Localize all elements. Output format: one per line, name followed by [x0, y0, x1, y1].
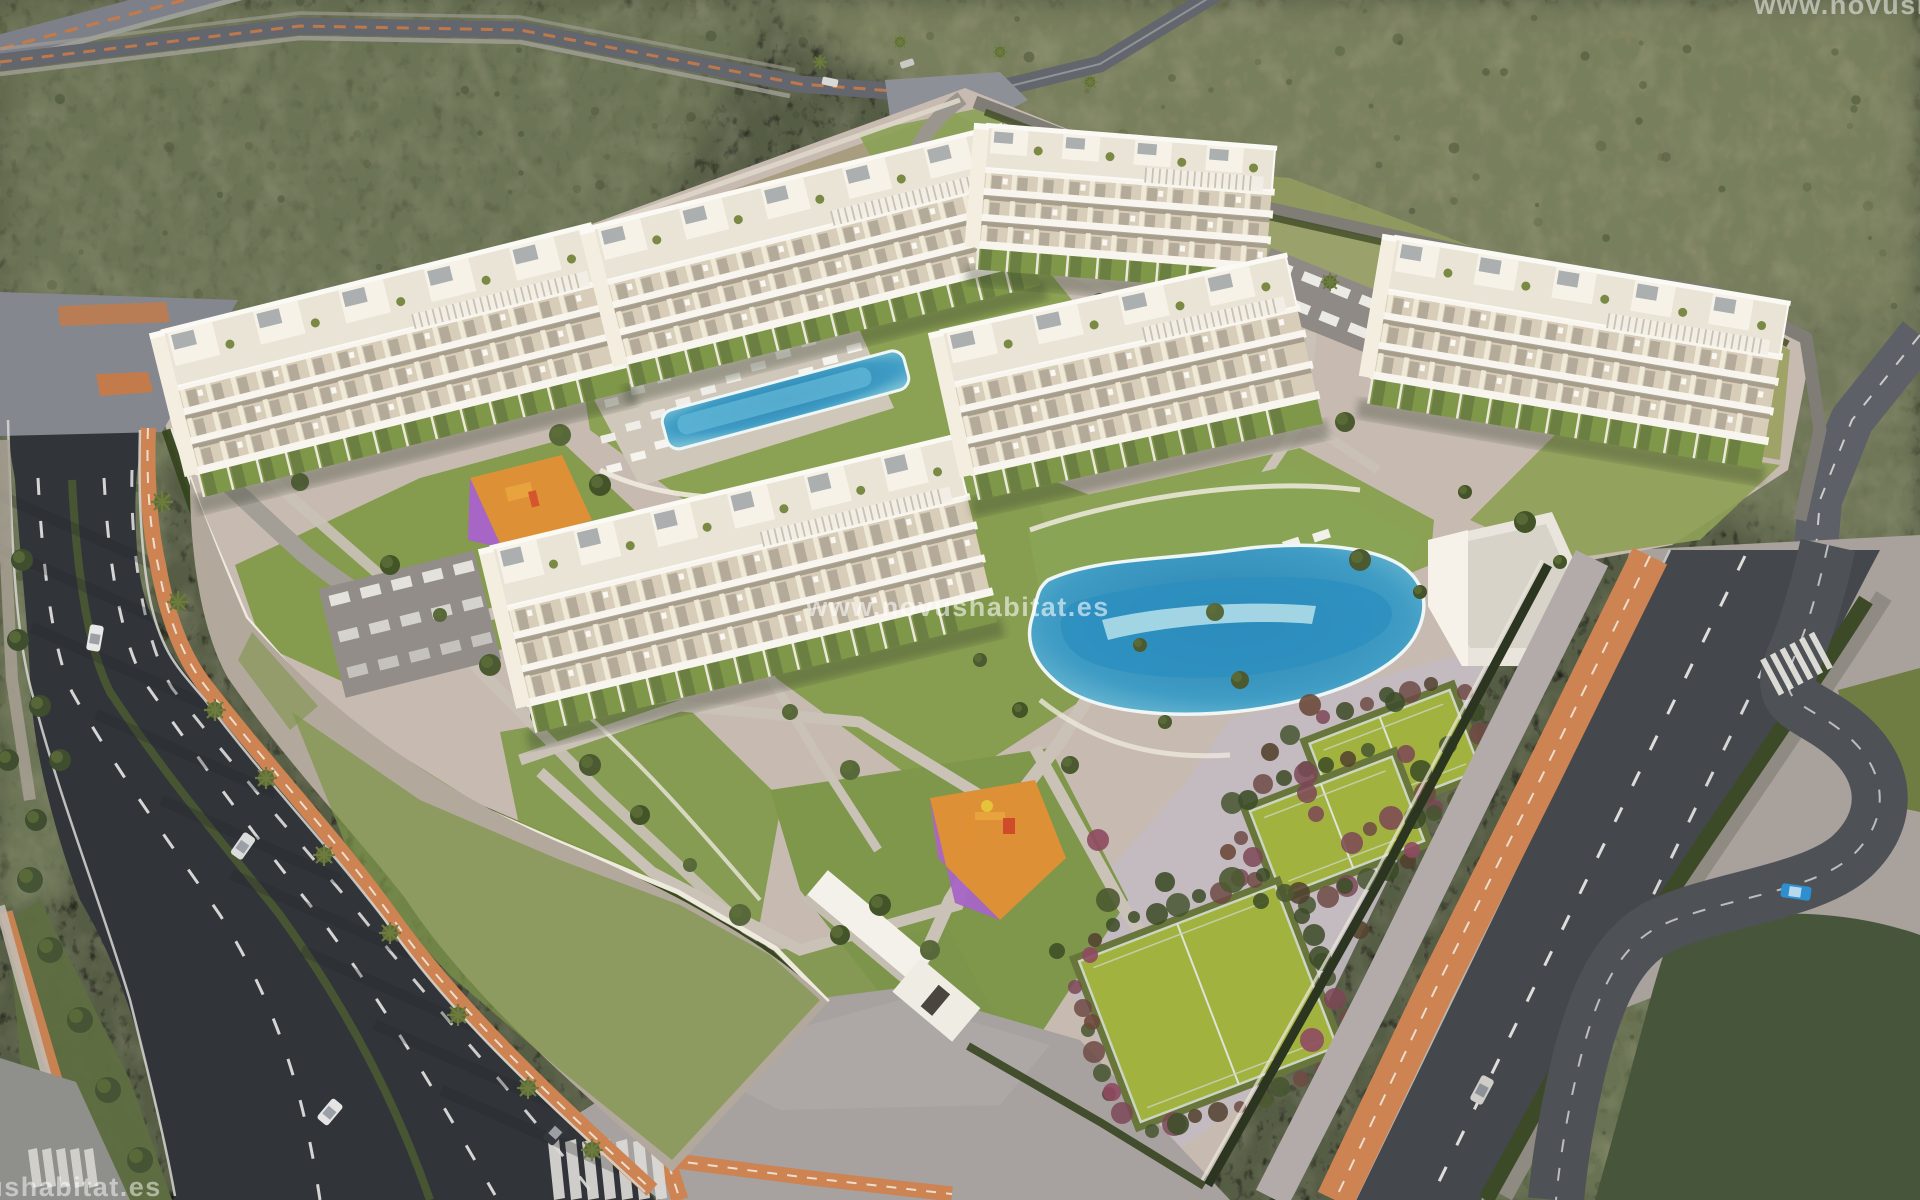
svg-text:www.novushabitat.es: www.novushabitat.es [805, 592, 1110, 622]
svg-text:www.novushabitat.es: www.novushabitat.es [0, 1172, 162, 1200]
svg-text:www.novushabitat.es: www.novushabitat.es [1753, 0, 1920, 20]
